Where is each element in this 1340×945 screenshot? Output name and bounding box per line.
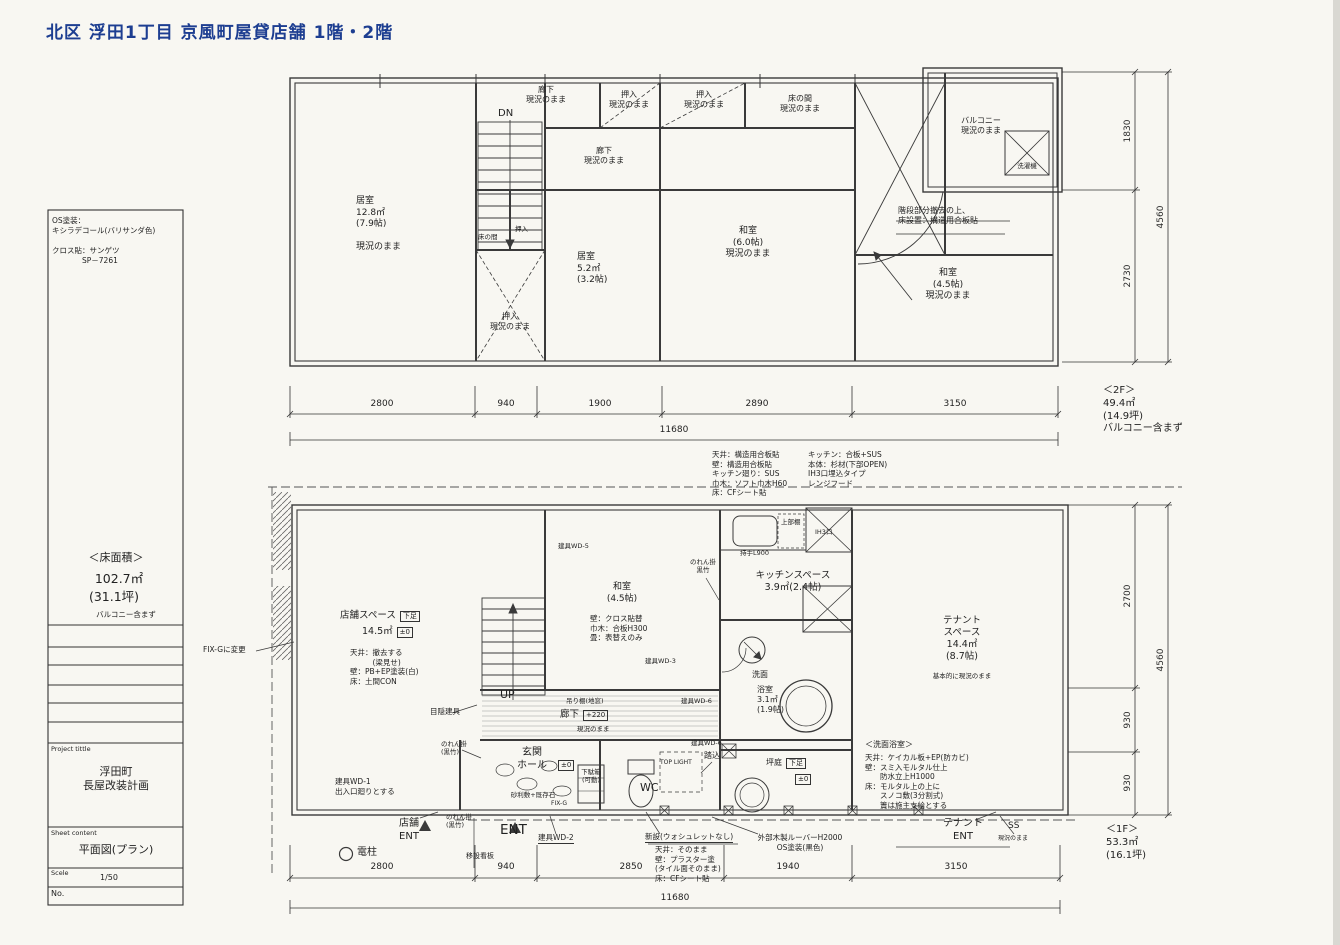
f2-hall-top: 廊下 現況のまま bbox=[526, 85, 566, 105]
f1-wd3: 建具WD-3 bbox=[645, 657, 676, 665]
scale-label: Scele bbox=[51, 869, 69, 877]
finish-note-2: クロス貼：サンゲツ SP－7261 bbox=[52, 246, 120, 265]
f2-washitsu-6: 和室 (6.0帖) 現況のまま bbox=[725, 226, 770, 261]
stairs-2f bbox=[478, 120, 542, 250]
f1-dim-940: 940 bbox=[497, 862, 514, 874]
f1-sign: 移設看板 bbox=[466, 852, 494, 861]
f1-washitsu: 和室 (4.5帖) bbox=[607, 582, 637, 605]
f1-dim-4560: 4560 bbox=[1156, 649, 1166, 672]
mid-notes-col2: キッチン：合板+SUS 本体：杉材(下部OPEN) IH3口埋込タイプ レンジフ… bbox=[808, 450, 887, 488]
f1-shop-level: ±0 bbox=[397, 627, 413, 638]
f2-dim-1900: 1900 bbox=[589, 399, 612, 411]
f2-dim-2730: 2730 bbox=[1123, 265, 1133, 288]
floor-area-note: バルコニー含まず bbox=[96, 610, 156, 620]
f2-dim-1830: 1830 bbox=[1123, 120, 1133, 143]
f1-fumikomi: 踏込 bbox=[704, 751, 720, 761]
f1-dim-2850: 2850 bbox=[620, 862, 643, 874]
f1-ss-note: 現況のまま bbox=[998, 835, 1028, 843]
f1-hanging-shelf: 吊り棚(地窓) bbox=[566, 697, 604, 705]
f1-hall-note: 現況のまま bbox=[577, 725, 610, 733]
scan-edge bbox=[1333, 0, 1340, 945]
f1-wd2: 建具WD-2 bbox=[538, 833, 574, 844]
f1-dim-1940: 1940 bbox=[777, 862, 800, 874]
f2-living-room: 居室 12.8㎡ (7.9帖) 現況のまま bbox=[356, 196, 401, 254]
f1-genkan: 玄関 ホール bbox=[517, 747, 547, 773]
f1-shop-area: 14.5㎡ ±0 bbox=[362, 626, 413, 638]
f1-senmen: 洗面 bbox=[752, 670, 768, 680]
floor-plan-sheet: 北区 浮田1丁目 京風町屋貸店舗 1階・2階 OS塗装： キシラデコール(バリサ… bbox=[0, 0, 1340, 945]
f1-wd5: 建具WD-5 bbox=[558, 542, 589, 550]
f1-upper-shelf: 上部棚 bbox=[781, 518, 801, 526]
f1-dim-2800: 2800 bbox=[371, 862, 394, 874]
f1-top-light: TOP LIGHT bbox=[660, 759, 692, 767]
f1-hall-label: 廊下 bbox=[560, 709, 579, 721]
f2-dim-2890: 2890 bbox=[746, 399, 769, 411]
f1-tenant-ent: テナント ENT bbox=[943, 818, 983, 844]
sheet-label: Sheet content bbox=[51, 829, 97, 837]
f1-dim-930b: 930 bbox=[1123, 774, 1133, 791]
f1-wc: WC bbox=[640, 781, 659, 795]
f1-genkan-level: ±0 bbox=[558, 760, 574, 771]
plan-linework bbox=[0, 0, 1340, 945]
f1-denchu: 電柱 bbox=[357, 847, 377, 860]
project-label: Project tittle bbox=[51, 745, 91, 753]
f1-up: UP bbox=[500, 688, 515, 702]
finish-note-1: OS塗装： キシラデコール(バリサンダ色) bbox=[52, 216, 155, 235]
f1-fix-g-small: FIX-G bbox=[551, 800, 567, 808]
f1-genkan-floor: 砂利敷+既存石 bbox=[511, 791, 555, 799]
f2-dim-2800: 2800 bbox=[371, 399, 394, 411]
f1-noren-bottom: のれん掛 (黒竹) bbox=[446, 813, 472, 830]
f1-hall-level: +220 bbox=[583, 710, 608, 721]
f1-wd6-b: 建具WD-6 bbox=[691, 739, 722, 747]
f2-balcony: バルコニー 現況のまま bbox=[961, 116, 1001, 136]
f1-shop-tag: 下足 bbox=[400, 611, 420, 622]
f1-wd1: 建具WD-1 出入口廻りとする bbox=[335, 777, 395, 796]
f2-washer: 洗濯機 bbox=[1017, 162, 1037, 170]
f2-dim-total: 11680 bbox=[660, 425, 689, 437]
project-name: 浮田町 長屋改装計画 bbox=[83, 765, 149, 793]
f2-washitsu-45: 和室 (4.5帖) 現況のまま bbox=[925, 268, 970, 303]
f1-handle: 持手L900 bbox=[740, 549, 769, 557]
f2-dim-3150: 3150 bbox=[944, 399, 967, 411]
f2-dim-940: 940 bbox=[497, 399, 514, 411]
f1-tsuboniwa-tag: 下足 bbox=[786, 758, 806, 769]
f1-louver-note: 外部木製ルーバーH2000 OS塗装(黒色) bbox=[758, 833, 843, 852]
mid-notes-col1: 天井：構造用合板貼 壁：構造用合板貼 キッチン廻り：SUS 巾木：ソフト巾木H6… bbox=[712, 450, 787, 498]
f1-mekakushi: 目隠建具 bbox=[430, 707, 460, 717]
page-title: 北区 浮田1丁目 京風町屋貸店舗 1階・2階 bbox=[46, 18, 393, 43]
f1-toilet-note-title: 新設(ウォシュレットなし) bbox=[645, 832, 733, 843]
f2-closet-2: 押入 現況のまま bbox=[684, 90, 724, 110]
f1-summary: ＜1F＞ 53.3㎡ (16.1坪) bbox=[1106, 824, 1146, 862]
f1-fix-g: FIX-Gに変更 bbox=[203, 645, 246, 655]
stairs-1f bbox=[482, 598, 545, 700]
f1-tsuboniwa-label: 坪庭 bbox=[766, 758, 782, 768]
f1-washitsu-spec: 壁：クロス貼替 巾木：合板H300 畳：表替えのみ bbox=[590, 614, 647, 643]
f2-closet-1: 押入 現況のまま bbox=[609, 90, 649, 110]
f2-hall-right: 廊下 現況のまま bbox=[584, 146, 624, 166]
floor-area-title: ＜床面積＞ bbox=[89, 551, 144, 565]
f2-closet-lower: 押入 現況のまま bbox=[490, 312, 530, 332]
f1-shop-title-text: 店舗スペース bbox=[340, 610, 396, 622]
f1-shop-area-text: 14.5㎡ bbox=[362, 626, 393, 638]
f1-bath-note: 天井：ケイカル板+EP(防カビ) 壁：スミ入モルタル仕上 防水立上H1000 床… bbox=[865, 753, 969, 811]
no-label: No. bbox=[51, 889, 64, 899]
f1-kitchen: キッチンスペース 3.9㎡(2.4帖) bbox=[756, 570, 831, 594]
f1-dim-3150: 3150 bbox=[945, 862, 968, 874]
f1-shop-spec: 天井：撤去する (梁見せ) 壁：PB+EP塗装(白) 床：土間CON bbox=[350, 648, 419, 686]
f1-bath-note-title: ＜洗面浴室＞ bbox=[865, 740, 913, 750]
f1-ih: IH3口 bbox=[815, 528, 832, 536]
f1-tenant: テナント スペース 14.4㎡ (8.7帖) bbox=[943, 615, 981, 664]
f1-noren-left: のれん掛 (黒竹) bbox=[441, 740, 467, 757]
f2-tokonoma-small: 床の間 bbox=[478, 233, 498, 241]
f1-shop-ent: 店舗 ENT bbox=[399, 818, 419, 844]
f1-dim-930a: 930 bbox=[1123, 711, 1133, 728]
f2-stair-removal-note: 階段部分撤去の上、 床設置：構造用合板貼 bbox=[898, 206, 978, 226]
floor-area-tsubo: (31.1坪) bbox=[89, 589, 139, 605]
f1-tsuboniwa: 坪庭 下足 bbox=[766, 758, 806, 769]
f1-shop-title: 店舗スペース 下足 bbox=[340, 610, 420, 622]
f1-ent: ENT bbox=[500, 822, 527, 839]
f1-dim-2700: 2700 bbox=[1123, 585, 1133, 608]
f2-room-5-2: 居室 5.2㎡ (3.2帖) bbox=[577, 252, 607, 287]
f1-noren-kitchen: のれん掛 黒竹 bbox=[690, 558, 716, 575]
f1-wd6-a: 建具WD-6 bbox=[681, 697, 712, 705]
floor-area-value: 102.7㎡ bbox=[95, 571, 143, 587]
f1-toilet-note: 天井：そのまま 壁：プラスター塗 (タイル面そのまま) 床：CFシート貼 bbox=[655, 845, 721, 883]
f1-ss: SS bbox=[1008, 821, 1019, 833]
f2-dn: DN bbox=[498, 108, 513, 121]
f1-hall: 廊下 +220 bbox=[560, 709, 608, 721]
sheet-name: 平面図(プラン) bbox=[79, 843, 154, 857]
f1-bath: 浴室 3.1㎡ (1.9帖) bbox=[757, 685, 784, 716]
f2-dim-4560: 4560 bbox=[1156, 206, 1166, 229]
f1-tsuboniwa-level: ±0 bbox=[795, 774, 811, 785]
f2-tokonoma-top: 床の間 現況のまま bbox=[780, 94, 820, 114]
f1-dim-total: 11680 bbox=[661, 893, 690, 905]
scale-value: 1/50 bbox=[100, 873, 118, 883]
f2-closet-small: 押入 bbox=[515, 225, 528, 233]
f2-summary: ＜2F＞ 49.4㎡ (14.9坪) バルコニー含まず bbox=[1103, 385, 1183, 436]
floor1-dimensions bbox=[287, 502, 1172, 914]
f1-tenant-note: 基本的に現況のまま bbox=[933, 672, 992, 680]
f1-getabako: 下駄箱 (可動) bbox=[581, 768, 601, 785]
